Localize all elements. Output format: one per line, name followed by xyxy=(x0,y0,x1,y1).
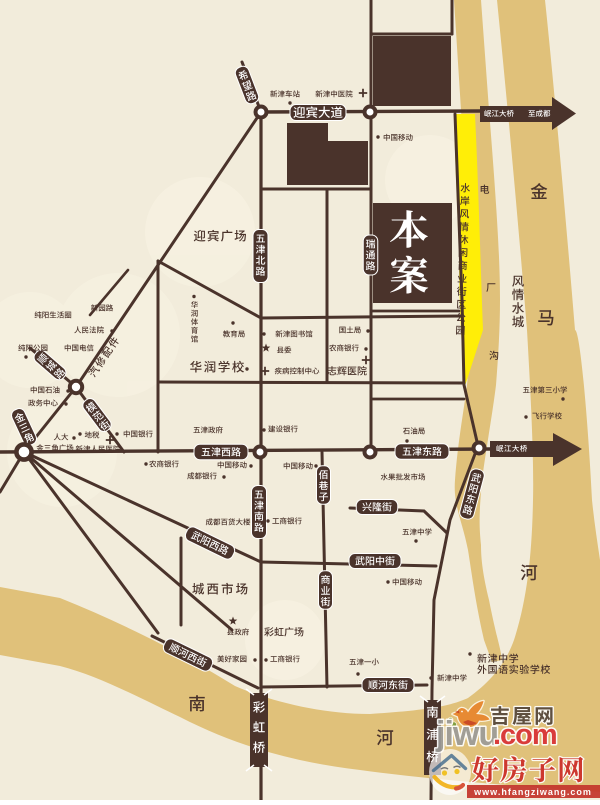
svg-text:jiwu: jiwu xyxy=(435,715,498,753)
svg-text:.com: .com xyxy=(493,719,557,751)
svg-text:www.hfangziwang.com: www.hfangziwang.com xyxy=(473,787,592,797)
